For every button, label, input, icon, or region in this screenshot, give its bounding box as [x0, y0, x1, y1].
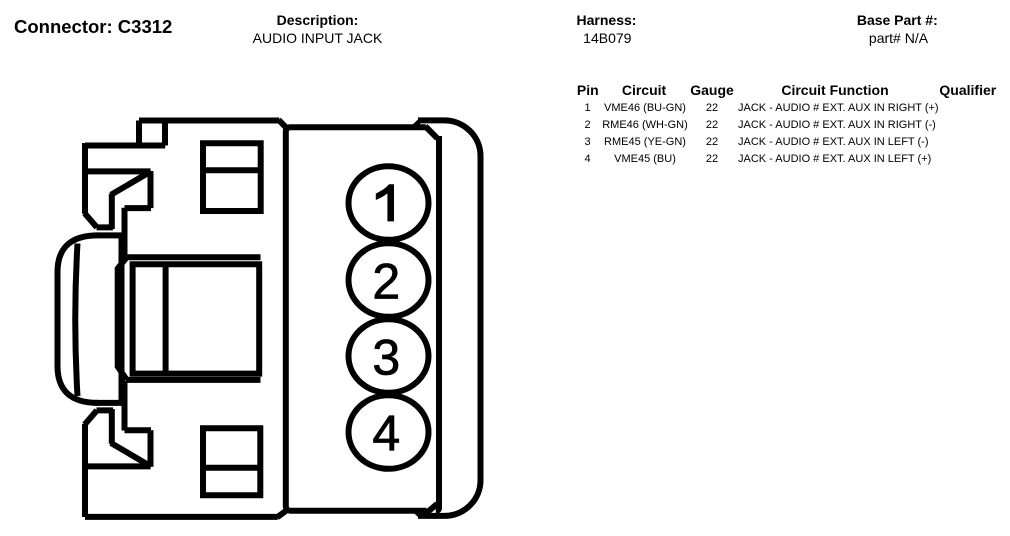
- svg-text:2: 2: [372, 253, 400, 309]
- svg-text:3: 3: [372, 329, 400, 385]
- svg-text:4: 4: [372, 405, 400, 461]
